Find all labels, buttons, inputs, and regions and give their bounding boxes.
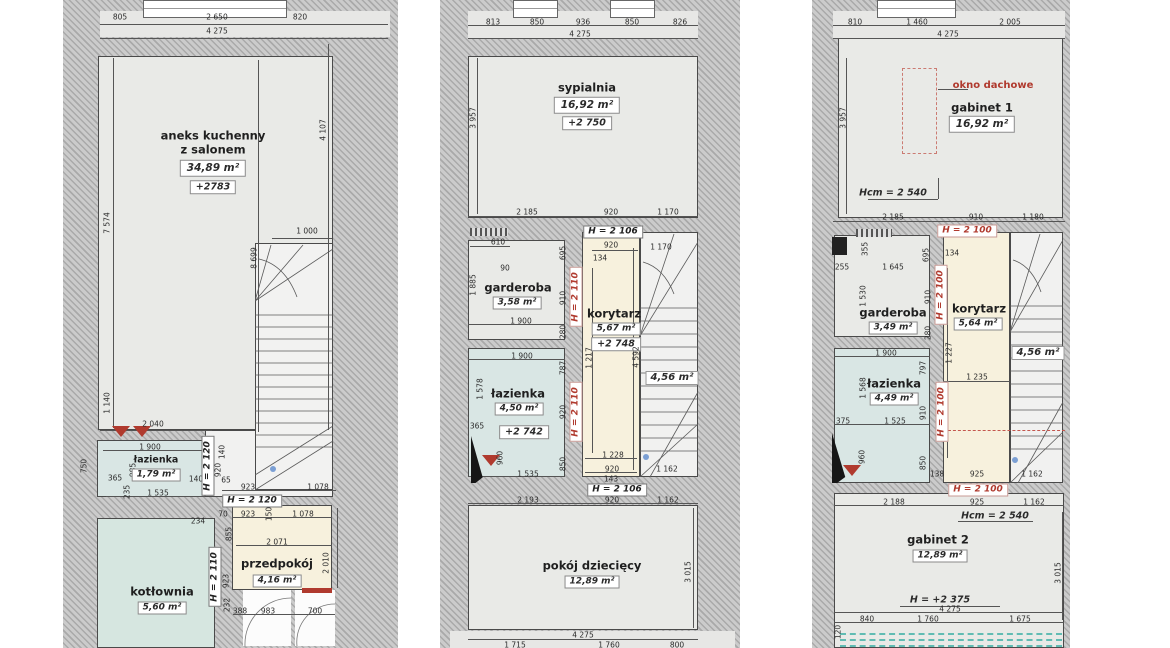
dim-line xyxy=(846,58,847,214)
dim-label: 2 650 xyxy=(206,13,227,21)
dim-label: 910 xyxy=(559,291,567,305)
dim-label: 4 592 xyxy=(632,346,640,367)
dim-label: 2 010 xyxy=(322,552,330,573)
dim-label: 1 760 xyxy=(917,615,938,623)
room-name-aneks: aneks kuchenny xyxy=(161,130,266,142)
dim-label: 925 xyxy=(970,498,984,506)
dim-label: 1 525 xyxy=(884,417,905,425)
dim-label: 983 xyxy=(261,607,275,615)
dim-label: 920 xyxy=(604,208,618,216)
dim-label: 1 530 xyxy=(859,285,867,306)
height-label: H = 2 120 xyxy=(202,436,215,496)
dim-label: 3 015 xyxy=(1054,562,1062,583)
dim-label: 8 699 xyxy=(250,247,258,268)
window xyxy=(610,0,655,18)
roof-window-label: okno dachowe xyxy=(953,81,1034,91)
dim-label: 1 162 xyxy=(1023,498,1044,506)
roof-line xyxy=(943,430,1065,431)
dim-label: 1 162 xyxy=(1021,470,1042,478)
dim-label: 143 xyxy=(604,475,618,483)
height-label: H = 2 110 xyxy=(209,547,222,607)
dim-label: 7 574 xyxy=(103,212,111,233)
dim-label: 1 535 xyxy=(147,489,168,497)
window xyxy=(513,0,558,18)
room-name-sypialnia: sypialnia xyxy=(558,82,616,94)
dim-label: 388 xyxy=(233,607,247,615)
dim-label: 1 535 xyxy=(517,470,538,478)
dim-label: 810 xyxy=(848,18,862,26)
dim-label: 923 xyxy=(222,574,230,588)
dim-label: 235 xyxy=(123,485,131,499)
dim-label: 1 715 xyxy=(504,641,525,648)
dim-label: 1 078 xyxy=(292,510,313,518)
dim-label: 800 xyxy=(670,641,684,648)
door-marker xyxy=(302,588,332,593)
dim-label: 797 xyxy=(919,361,927,375)
dim-label: 4 275 xyxy=(569,30,590,38)
room-kotlownia xyxy=(97,518,215,648)
room-name-garderoba: garderoba xyxy=(859,307,926,319)
cross-hatch-wall xyxy=(856,229,892,237)
window xyxy=(877,0,956,18)
room-area-aneks: 34,89 m² xyxy=(180,160,246,177)
room-area-gabinet-1: 16,92 m² xyxy=(949,116,1015,133)
dim-label: 1 162 xyxy=(656,465,677,473)
dim-label: 1 162 xyxy=(657,496,678,504)
dim-label: 4 275 xyxy=(939,605,960,613)
dim-label: 1 228 xyxy=(602,451,623,459)
room-area-przedpokoj: 4,16 m² xyxy=(253,575,302,588)
dim-label: 2 071 xyxy=(266,538,287,546)
dim-line xyxy=(328,44,329,430)
dim-label: 65 xyxy=(221,476,231,484)
dim-label: 4 107 xyxy=(319,119,327,140)
room-name-lazienka: łazienka xyxy=(491,388,545,400)
room-gabinet-2 xyxy=(834,493,1064,648)
dim-label: 1 885 xyxy=(469,274,477,295)
dim-label: 1 675 xyxy=(1009,615,1030,623)
dim-label: 850 xyxy=(530,18,544,26)
entrance-doors xyxy=(233,586,337,648)
room-name-kotlownia: kotłownia xyxy=(130,586,193,598)
dim-label: 610 xyxy=(491,238,505,246)
height-label: H = 2 106 xyxy=(583,226,643,239)
dim-label: 150 xyxy=(265,507,273,521)
dim-label: 695 xyxy=(559,246,567,260)
roof-edge-line xyxy=(840,645,1062,647)
dim-label: 855 xyxy=(225,527,233,541)
dim-label: 4 275 xyxy=(572,631,593,639)
room-level-sypialnia: +2 750 xyxy=(562,116,612,130)
dim-label: 120 xyxy=(834,625,842,639)
dim-label: 90 xyxy=(500,264,510,272)
room-level-lazienka: +2 742 xyxy=(499,425,549,439)
dim-label: 700 xyxy=(308,607,322,615)
dim-line xyxy=(868,199,938,200)
radiator-icon xyxy=(843,465,861,476)
dim-label: 1 568 xyxy=(859,377,867,398)
dim-label: 2 188 xyxy=(883,498,904,506)
dim-label: 936 xyxy=(576,18,590,26)
dim-line xyxy=(272,238,332,239)
stairs-area: 4,56 m² xyxy=(646,371,699,385)
dim-label: 1 180 xyxy=(1022,213,1043,221)
stairs-area: 4,56 m² xyxy=(1012,346,1065,360)
dim-label: 923 xyxy=(241,483,255,491)
dim-label: 3 015 xyxy=(684,561,692,582)
room-area-lazienka: 4,49 m² xyxy=(870,393,919,406)
dim-label: 2 193 xyxy=(517,496,538,504)
dim-label: 1 760 xyxy=(598,641,619,648)
dim-label: 920 xyxy=(559,405,567,419)
dim-line xyxy=(100,24,388,25)
room-area-lazienka: 1,79 m² xyxy=(132,469,181,482)
dim-line xyxy=(337,508,338,588)
height-label: H = 2 110 xyxy=(570,382,583,442)
room-name-lazienka: łazienka xyxy=(867,378,921,390)
floor-plan-canvas: 8052 6508204 2754 1077 5748 6991 0001 14… xyxy=(0,0,1170,648)
dim-label: 750 xyxy=(80,459,88,473)
dim-label: 1 170 xyxy=(657,208,678,216)
dim-label: 820 xyxy=(293,13,307,21)
dim-label: 850 xyxy=(919,456,927,470)
dim-label: 850 xyxy=(559,457,567,471)
room-name-lazienka: łazienka xyxy=(134,455,179,465)
dim-label: 920 xyxy=(604,241,618,249)
room-level-aneks: +2783 xyxy=(190,180,236,194)
dim-label: 1 900 xyxy=(139,443,160,451)
dim-label: 1 578 xyxy=(476,378,484,399)
height-label: H = 2 110 xyxy=(570,267,583,327)
room-area-korytarz: 5,64 m² xyxy=(954,318,1003,331)
cross-hatch-wall xyxy=(470,228,508,236)
dim-label: 2 040 xyxy=(142,420,163,428)
dim-label: 255 xyxy=(835,263,849,271)
room-area-pokoj-dzieciecy: 12,89 m² xyxy=(565,576,620,589)
dim-label: 70 xyxy=(218,510,228,518)
room-area-garderoba: 3,58 m² xyxy=(493,297,542,310)
dim-label: 2 185 xyxy=(882,213,903,221)
dim-label: 365 xyxy=(108,474,122,482)
dim-label: 4 275 xyxy=(937,30,958,38)
dim-label: 234 xyxy=(191,517,205,525)
height-label: H = 2 100 xyxy=(936,382,949,442)
dim-line xyxy=(113,58,114,428)
height-label: Hcm = 2 540 xyxy=(859,188,927,198)
dim-label: 138 xyxy=(930,470,944,478)
dim-label: 134 xyxy=(593,254,607,262)
room-area-kotlownia: 5,60 m² xyxy=(138,602,187,615)
dim-label: 813 xyxy=(486,18,500,26)
dim-label: 1 460 xyxy=(906,18,927,26)
dim-label: 910 xyxy=(924,290,932,304)
room-area-sypialnia: 16,92 m² xyxy=(554,97,620,114)
radiator-icon xyxy=(112,426,130,437)
dim-label: 960 xyxy=(496,451,504,465)
dim-label: 1 078 xyxy=(307,483,328,491)
dim-label: 1 227 xyxy=(945,342,953,363)
room-name-przedpokoj: przedpokój xyxy=(241,558,313,570)
height-label: Hcm = 2 540 xyxy=(961,511,1029,521)
dim-label: 232 xyxy=(223,598,231,612)
room-area-gabinet-2: 12,89 m² xyxy=(913,550,968,563)
room-name-gabinet-2: gabinet 2 xyxy=(907,534,969,546)
dim-label: 923 xyxy=(241,510,255,518)
dim-label: 1 170 xyxy=(650,243,671,251)
dim-label: 3 957 xyxy=(469,107,477,128)
roof-window-outline xyxy=(902,68,937,154)
dim-label: 826 xyxy=(673,18,687,26)
staircase-first-floor xyxy=(640,232,698,477)
dim-label: 280 xyxy=(559,325,567,339)
dim-label: 1 900 xyxy=(875,349,896,357)
staircase-ground-floor xyxy=(255,243,333,490)
dim-label: 910 xyxy=(969,213,983,221)
dim-label: 4 275 xyxy=(206,27,227,35)
room-name-aneks-2: z salonem xyxy=(180,144,245,156)
room-name-gabinet-1: gabinet 1 xyxy=(951,102,1013,114)
height-label: H = 2 100 xyxy=(935,265,948,325)
dim-label: 840 xyxy=(860,615,874,623)
room-area-lazienka: 4,50 m² xyxy=(495,403,544,416)
dim-label: 140 xyxy=(218,445,226,459)
dim-label: 375 xyxy=(836,417,850,425)
height-label: H = 2 100 xyxy=(937,225,997,238)
dim-label: 805 xyxy=(113,13,127,21)
dim-label: 134 xyxy=(945,249,959,257)
dim-label: 910 xyxy=(919,406,927,420)
room-area-korytarz: 5,67 m² xyxy=(592,323,641,336)
dim-label: 787 xyxy=(559,361,567,375)
dim-label: 850 xyxy=(625,18,639,26)
dim-label: 1 217 xyxy=(585,347,593,368)
height-label: H = 2 100 xyxy=(948,484,1008,497)
dim-label: 1 140 xyxy=(103,392,111,413)
dim-label: 2 185 xyxy=(516,208,537,216)
dim-label: 1 000 xyxy=(296,227,317,235)
dim-label: 365 xyxy=(470,422,484,430)
dim-line xyxy=(693,508,694,628)
dim-label: 1 900 xyxy=(511,352,532,360)
roof-edge-line xyxy=(840,633,1062,635)
dim-line xyxy=(938,178,939,199)
dim-label: 1 235 xyxy=(966,373,987,381)
dim-label: 1 645 xyxy=(882,263,903,271)
dim-label: 3 957 xyxy=(839,107,847,128)
height-label: H = 2 120 xyxy=(222,495,282,508)
dim-label: 920 xyxy=(605,496,619,504)
room-name-pokoj-dzieciecy: pokój dziecięcy xyxy=(543,560,642,572)
dim-line xyxy=(592,250,638,251)
dim-label: 355 xyxy=(861,242,869,256)
dim-line xyxy=(258,60,259,432)
dim-label: 1 900 xyxy=(510,317,531,325)
dim-line xyxy=(100,38,388,39)
room-name-garderoba: garderoba xyxy=(484,282,551,294)
room-name-korytarz: korytarz xyxy=(952,303,1006,315)
dim-label: 920 xyxy=(605,465,619,473)
dim-label: 2 005 xyxy=(999,18,1020,26)
room-area-garderoba: 3,49 m² xyxy=(869,322,918,335)
dim-label: 960 xyxy=(858,450,866,464)
dim-label: 280 xyxy=(924,326,932,340)
dim-label: 695 xyxy=(922,248,930,262)
dim-line xyxy=(477,58,478,214)
roof-edge-line xyxy=(840,639,1062,641)
dim-line xyxy=(833,25,1065,26)
room-name-korytarz: korytarz xyxy=(587,308,641,320)
chimney-block xyxy=(832,237,847,255)
dim-label: 925 xyxy=(970,470,984,478)
